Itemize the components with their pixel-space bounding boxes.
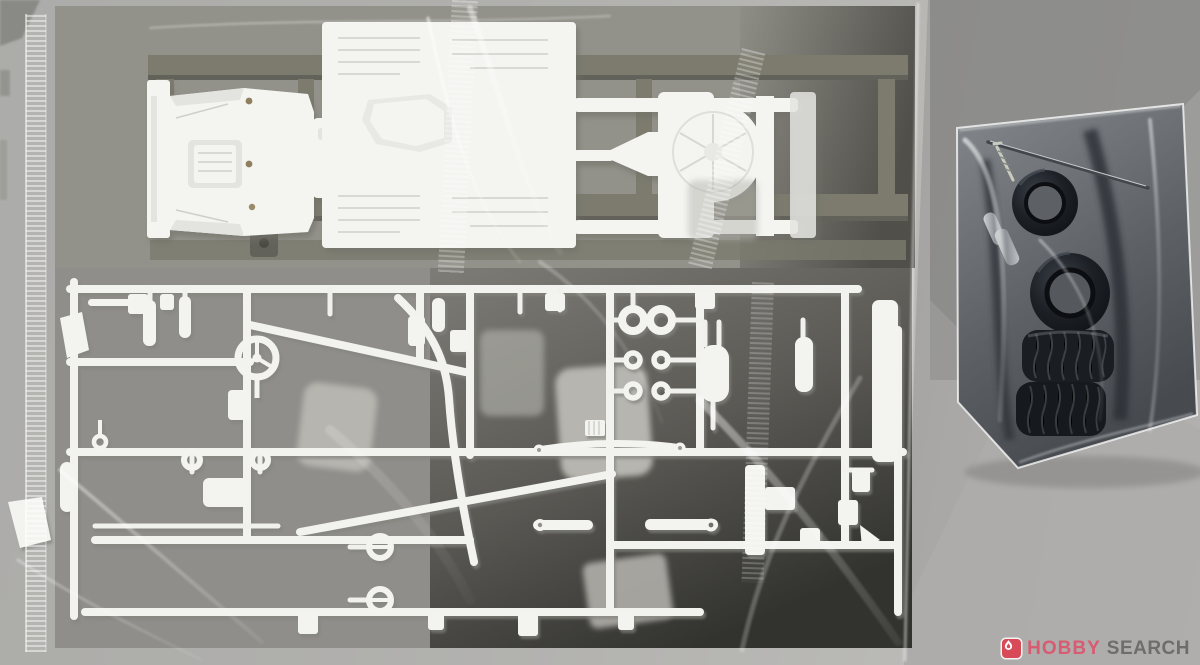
flame-icon (1002, 639, 1021, 658)
photo-canvas (0, 0, 1200, 665)
main-bag (0, 0, 928, 665)
watermark: HOBBY SEARCH (1002, 639, 1190, 658)
photo-scene: HOBBY SEARCH (0, 0, 1200, 665)
watermark-brand-text: HOBBY (1027, 639, 1101, 658)
watermark-suffix-text: SEARCH (1107, 639, 1190, 658)
tire-front-1 (1012, 170, 1078, 236)
tire-tread-2 (1016, 382, 1106, 436)
flame-glyph (1002, 639, 1015, 652)
tire-front-2 (1030, 253, 1110, 333)
